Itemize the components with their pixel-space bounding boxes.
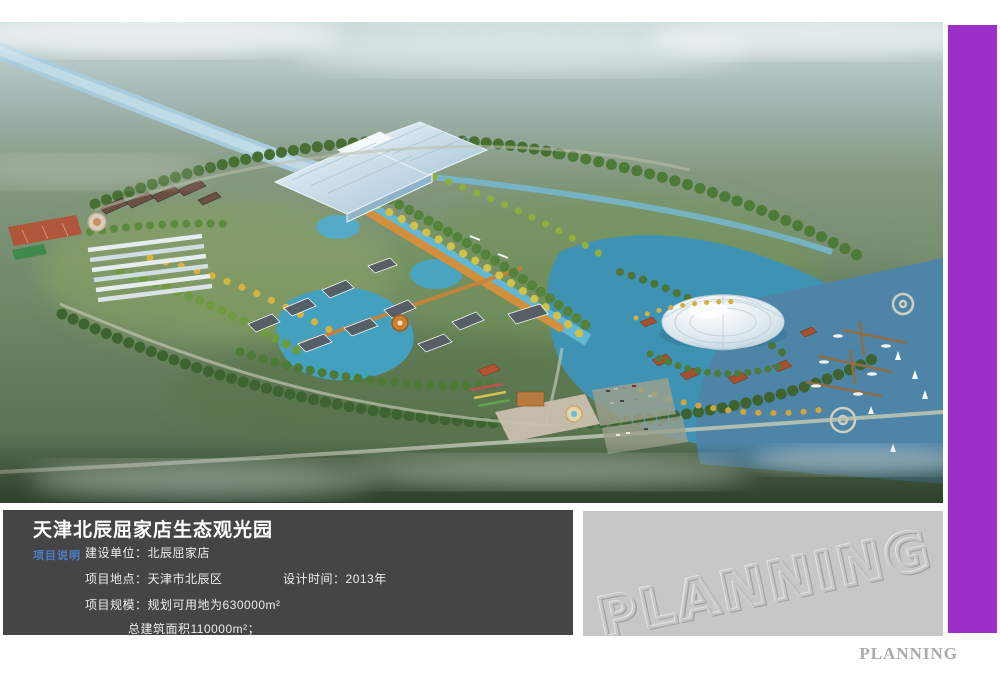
field-construction-unit: 建设单位：北辰屈家店 <box>85 544 210 561</box>
field-location: 项目地点：天津市北辰区 <box>85 570 223 587</box>
field-label: 建设单位： <box>85 546 148 560</box>
presentation-board: 天津北辰屈家店生态观光园 项目说明 建设单位：北辰屈家店 项目地点：天津市北辰区… <box>0 0 1000 678</box>
field-label: 设计时间： <box>283 572 346 586</box>
brand-logo-text: PLANNING <box>859 644 958 664</box>
field-label: 项目规模： <box>85 598 148 612</box>
section-label: 项目说明 <box>33 547 81 563</box>
field-design-time: 设计时间：2013年 <box>283 570 387 587</box>
watermark-panel: PLANNING PLANNING PLANNING <box>583 511 943 636</box>
field-value: 2013年 <box>346 572 387 586</box>
aerial-rendering <box>0 22 943 503</box>
field-scale: 项目规模：规划可用地为630000m² <box>85 596 281 613</box>
accent-bar <box>948 25 997 633</box>
field-value: 规划可用地为630000m² <box>148 598 281 612</box>
watermark-emboss: PLANNING PLANNING PLANNING <box>583 511 943 636</box>
field-floor-area: 总建筑面积110000m²； <box>128 620 260 637</box>
field-value: 北辰屈家店 <box>148 546 211 560</box>
field-label: 项目地点： <box>85 572 148 586</box>
field-value: 天津市北辰区 <box>148 572 223 586</box>
field-value: 总建筑面积110000m²； <box>128 622 260 636</box>
watermark-text: PLANNING <box>593 518 938 636</box>
project-info-panel: 天津北辰屈家店生态观光园 项目说明 建设单位：北辰屈家店 项目地点：天津市北辰区… <box>3 510 573 635</box>
project-title: 天津北辰屈家店生态观光园 <box>33 515 273 542</box>
